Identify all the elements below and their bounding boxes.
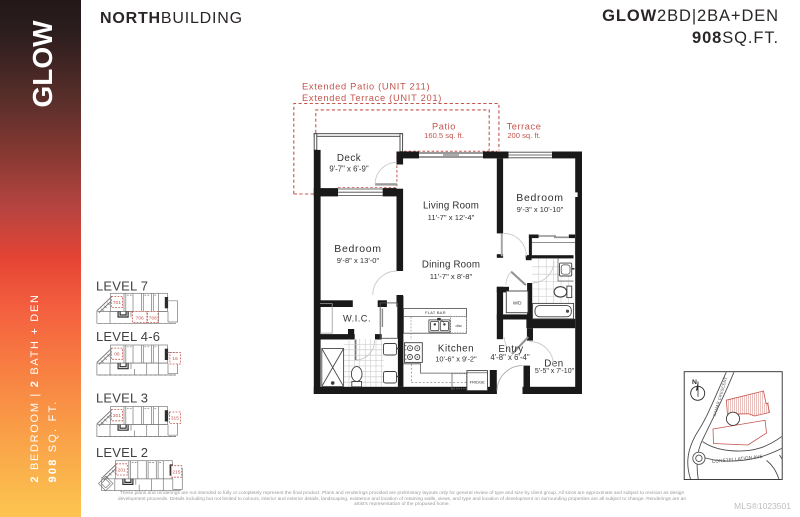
svg-text:9'-7" x 6'-9": 9'-7" x 6'-9": [329, 165, 369, 174]
svg-text:06: 06: [114, 352, 120, 358]
svg-text:200 sq. ft.: 200 sq. ft.: [507, 131, 540, 140]
svg-text:d/w: d/w: [455, 323, 461, 328]
svg-text:Dining Room: Dining Room: [422, 260, 480, 271]
svg-text:11'-7" x 8'-8": 11'-7" x 8'-8": [430, 272, 473, 281]
svg-text:701: 701: [113, 300, 121, 306]
svg-text:Bedroom: Bedroom: [516, 192, 564, 204]
svg-text:FLAT BAR: FLAT BAR: [425, 310, 446, 315]
svg-text:Bedroom: Bedroom: [334, 243, 382, 255]
svg-text:LEVEL 4-6: LEVEL 4-6: [96, 329, 160, 344]
svg-text:9'-8" x 13'-0": 9'-8" x 13'-0": [337, 256, 380, 265]
svg-text:W/D: W/D: [513, 300, 522, 305]
svg-text:5'-5" x 7'-10": 5'-5" x 7'-10": [535, 368, 575, 375]
svg-text:FRIDGE: FRIDGE: [470, 379, 485, 384]
svg-text:Living Room: Living Room: [423, 201, 479, 212]
svg-text:215: 215: [172, 469, 180, 475]
svg-text:201: 201: [118, 467, 126, 473]
svg-text:706: 706: [136, 316, 144, 322]
svg-text:301: 301: [113, 413, 121, 419]
svg-text:4'-8" x 6'-4": 4'-8" x 6'-4": [490, 353, 530, 362]
svg-text:10'-6" x 9'-2": 10'-6" x 9'-2": [435, 355, 477, 364]
svg-text:Extended Terrace (UNIT 201): Extended Terrace (UNIT 201): [302, 93, 442, 103]
svg-text:LEVEL 3: LEVEL 3: [96, 391, 148, 406]
svg-text:708: 708: [149, 316, 157, 322]
svg-text:16: 16: [172, 356, 178, 362]
svg-text:Deck: Deck: [337, 153, 361, 164]
svg-text:11'-7" x 12'-4": 11'-7" x 12'-4": [428, 213, 475, 222]
svg-text:N: N: [692, 379, 697, 386]
svg-text:160.5 sq. ft.: 160.5 sq. ft.: [424, 131, 464, 140]
svg-text:9'-3" x 10'-10": 9'-3" x 10'-10": [517, 205, 564, 214]
svg-text:Extended Patio (UNIT 211): Extended Patio (UNIT 211): [302, 82, 430, 92]
svg-text:LEVEL 7: LEVEL 7: [96, 279, 148, 294]
svg-text:W.I.C.: W.I.C.: [343, 314, 371, 324]
svg-text:Kitchen: Kitchen: [438, 344, 474, 355]
svg-text:315: 315: [171, 416, 179, 422]
svg-text:LEVEL 2: LEVEL 2: [96, 445, 148, 460]
